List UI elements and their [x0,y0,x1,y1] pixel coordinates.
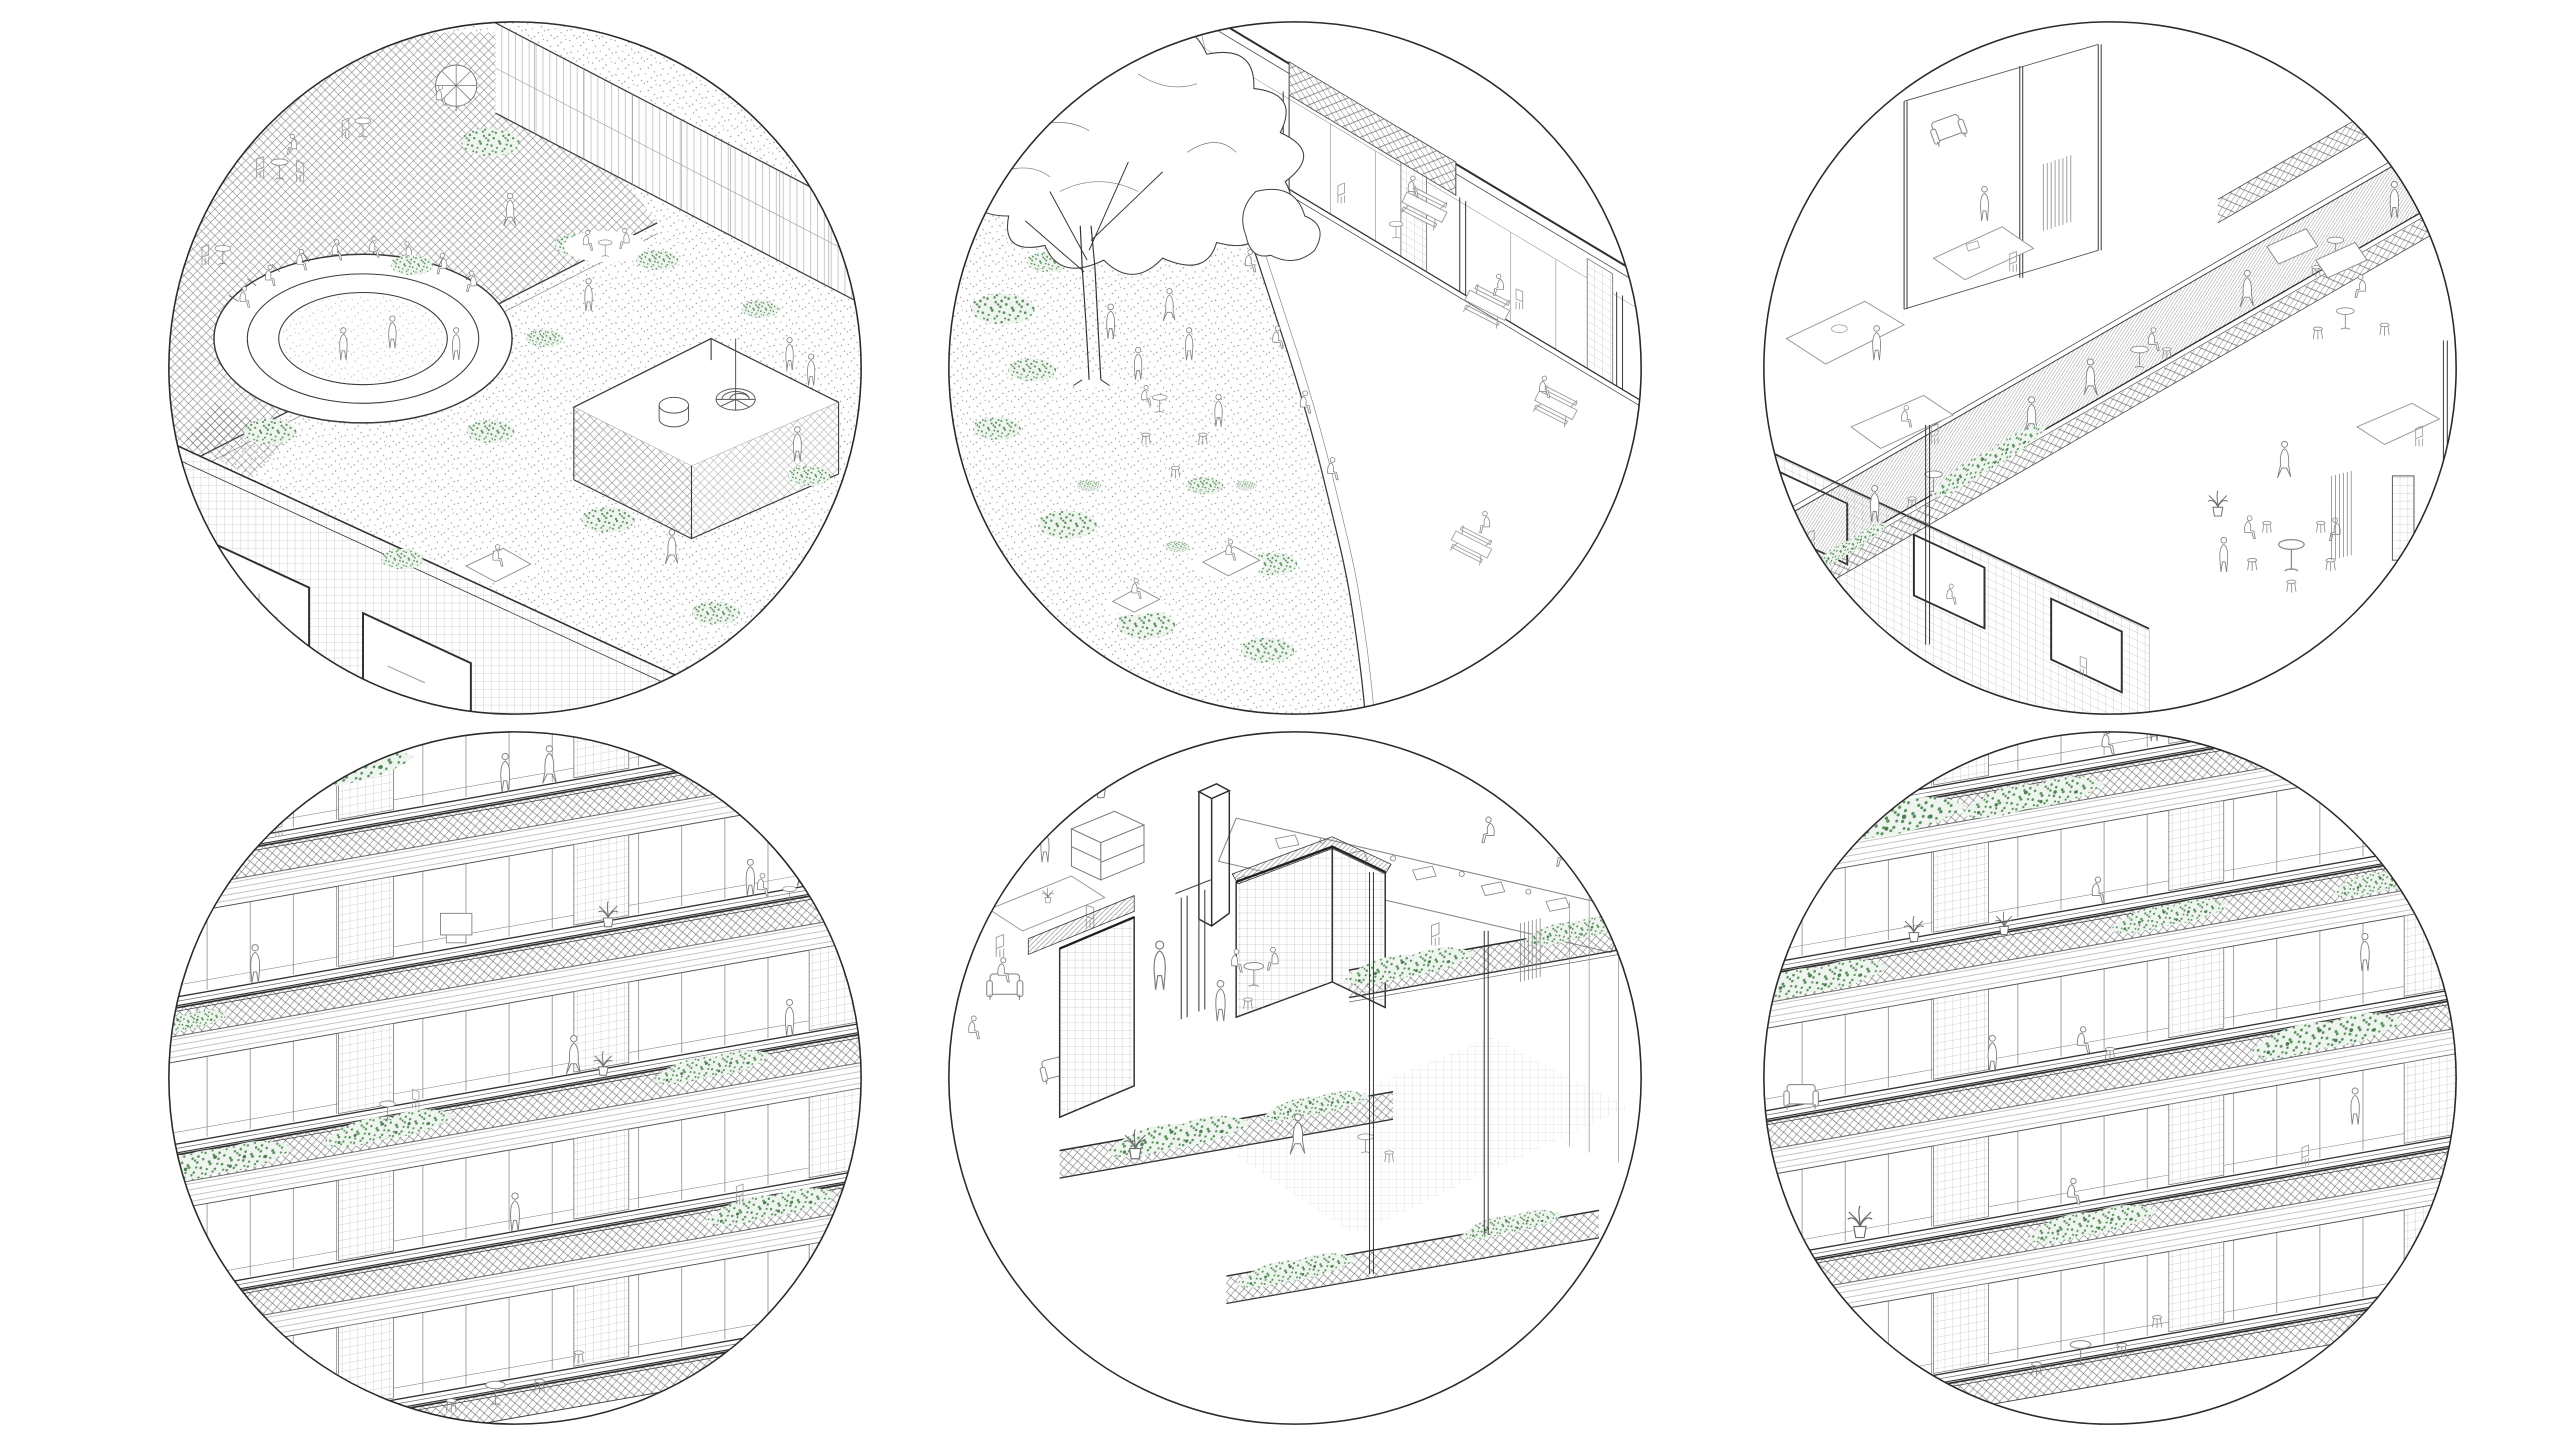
vignette-courtyard-lawn: Courtyard with large tree [942,15,1648,721]
facade-east-drawing [1757,725,2463,1431]
facade-bands [162,725,868,1431]
interior-workspace-drawing [942,725,1648,1431]
vignette-interior-workspace: Interior workspace cutaway [942,725,1648,1431]
vignette-roof-garden: Roof garden axonometric [162,15,868,721]
vignette-facade-balconies-west: Facade with planted walkway balconies [162,725,868,1431]
interior-gallery-drawing [1757,15,2463,721]
courtyard-drawing [942,15,1648,721]
plant-pot [1056,782,1079,811]
vignette-interior-gallery: Interior gallery walkway [1757,15,2463,721]
facade-bands [1757,725,2463,1431]
vignette-facade-balconies-east: Facade with window seats and planters [1757,725,2463,1431]
facade-west-drawing [162,725,868,1431]
cylinder-seat [659,397,688,426]
vignette-grid-canvas: Roof garden axonometric [0,0,2550,1440]
roof-garden-drawing [162,15,868,721]
